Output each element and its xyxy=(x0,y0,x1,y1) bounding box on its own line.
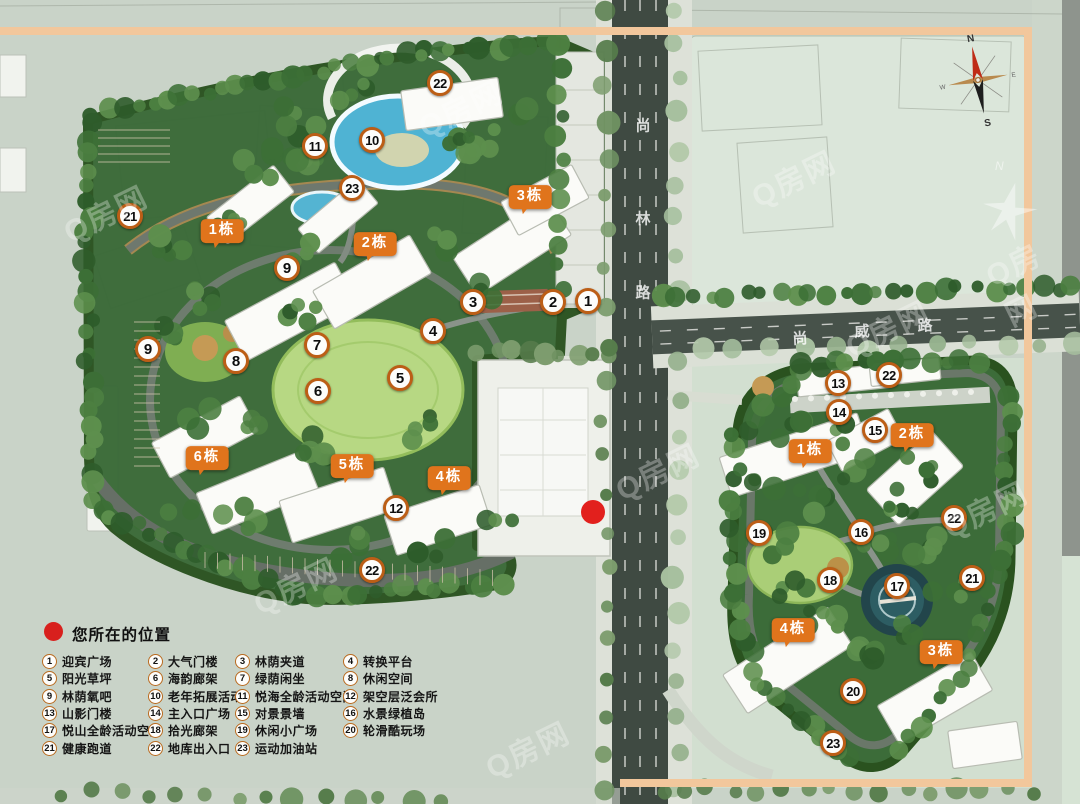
legend: 您所在的位置 1迎宾广场5阳光草坪9林荫氧吧13山影门楼17悦山全龄活动空间21… xyxy=(36,620,636,790)
legend-item-label: 休闲小广场 xyxy=(255,722,318,739)
site-plan-image: N S E W N 您所在的位置 1迎宾广场5阳光草坪9林荫氧吧13山影门楼17… xyxy=(0,0,1080,804)
map-marker-18: 18 xyxy=(817,567,843,593)
building-badge-5栋: 5栋 xyxy=(331,454,374,478)
map-marker-13: 13 xyxy=(825,370,851,396)
map-marker-22: 22 xyxy=(427,70,453,96)
legend-column: 3林荫夹道7绿荫闲坐11悦海全龄活动空间15对景景墙19休闲小广场23运动加油站 xyxy=(235,653,355,757)
building-badge-2栋: 2栋 xyxy=(891,423,934,447)
map-marker-6: 6 xyxy=(305,378,331,404)
legend-item-14: 14主入口广场 xyxy=(148,705,243,722)
legend-item-number: 7 xyxy=(235,671,250,686)
building-badge-6栋: 6栋 xyxy=(186,446,229,470)
legend-item-label: 转换平台 xyxy=(363,653,413,670)
map-marker-22: 22 xyxy=(941,505,967,531)
legend-item-18: 18拾光廊架 xyxy=(148,722,243,739)
right-edge-lower xyxy=(1062,556,1080,804)
legend-item-number: 12 xyxy=(343,689,358,704)
legend-item-19: 19休闲小广场 xyxy=(235,722,355,739)
legend-item-label: 林荫氧吧 xyxy=(62,688,112,705)
legend-item-number: 21 xyxy=(42,741,57,756)
legend-item-number: 17 xyxy=(42,723,57,738)
legend-item-number: 5 xyxy=(42,671,57,686)
legend-item-number: 4 xyxy=(343,654,358,669)
legend-item-number: 23 xyxy=(235,741,250,756)
horizontal-road-label: 尚 xyxy=(792,327,808,349)
legend-item-label: 健康跑道 xyxy=(62,740,112,757)
map-marker-14: 14 xyxy=(826,399,852,425)
legend-item-label: 迎宾广场 xyxy=(62,653,112,670)
legend-item-22: 22地库出入口 xyxy=(148,739,243,756)
legend-item-label: 老年拓展活动 xyxy=(168,688,243,705)
legend-item-number: 3 xyxy=(235,654,250,669)
legend-item-3: 3林荫夹道 xyxy=(235,653,355,670)
legend-item-label: 轮滑酷玩场 xyxy=(363,722,426,739)
legend-item-label: 休闲空间 xyxy=(363,670,413,687)
north-east-plot xyxy=(690,36,1028,306)
legend-item-1: 1迎宾广场 xyxy=(42,653,162,670)
orange-frame-right xyxy=(1024,27,1032,787)
legend-item-label: 地库出入口 xyxy=(168,740,231,757)
legend-item-number: 1 xyxy=(42,654,57,669)
legend-item-4: 4转换平台 xyxy=(343,653,438,670)
legend-item-15: 15对景景墙 xyxy=(235,705,355,722)
legend-item-number: 10 xyxy=(148,689,163,704)
legend-item-20: 20轮滑酷玩场 xyxy=(343,722,438,739)
watermark-north-letter: N xyxy=(995,159,1004,173)
legend-item-label: 对景景墙 xyxy=(255,705,305,722)
vertical-road-label: 尚 xyxy=(635,115,650,136)
building-badge-2栋: 2栋 xyxy=(354,232,397,256)
legend-item-8: 8休闲空间 xyxy=(343,670,438,687)
legend-column: 4转换平台8休闲空间12架空层泛会所16水景绿植岛20轮滑酷玩场 xyxy=(343,653,438,739)
legend-item-label: 水景绿植岛 xyxy=(363,705,426,722)
map-marker-11: 11 xyxy=(302,133,328,159)
horizontal-road-label: 威 xyxy=(854,320,870,342)
map-marker-16: 16 xyxy=(848,519,874,545)
map-marker-9: 9 xyxy=(274,255,300,281)
map-marker-8: 8 xyxy=(223,348,249,374)
legend-item-number: 14 xyxy=(148,706,163,721)
orange-frame-top xyxy=(0,27,1032,35)
legend-item-13: 13山影门楼 xyxy=(42,705,162,722)
map-marker-23: 23 xyxy=(820,730,846,756)
legend-item-label: 悦山全龄活动空间 xyxy=(62,722,162,739)
legend-item-12: 12架空层泛会所 xyxy=(343,688,438,705)
building-badge-1栋: 1栋 xyxy=(789,439,832,463)
building-badge-4栋: 4栋 xyxy=(428,466,471,490)
building-badge-4栋: 4栋 xyxy=(772,618,815,642)
legend-item-9: 9林荫氧吧 xyxy=(42,688,162,705)
legend-item-number: 19 xyxy=(235,723,250,738)
building-badge-3栋: 3栋 xyxy=(509,185,552,209)
legend-item-number: 13 xyxy=(42,706,57,721)
legend-item-label: 海韵廊架 xyxy=(168,670,218,687)
map-marker-7: 7 xyxy=(304,332,330,358)
legend-item-11: 11悦海全龄活动空间 xyxy=(235,688,355,705)
vertical-road-label: 林 xyxy=(635,208,650,229)
orange-frame-bottom xyxy=(620,779,1032,787)
current-location-dot xyxy=(581,500,605,524)
legend-item-17: 17悦山全龄活动空间 xyxy=(42,722,162,739)
legend-item-label: 绿荫闲坐 xyxy=(255,670,305,687)
legend-column: 2大气门楼6海韵廊架10老年拓展活动14主入口广场18拾光廊架22地库出入口 xyxy=(148,653,243,757)
map-marker-21: 21 xyxy=(117,203,143,229)
map-marker-3: 3 xyxy=(460,289,486,315)
legend-item-5: 5阳光草坪 xyxy=(42,670,162,687)
horizontal-road-label: 路 xyxy=(917,314,933,336)
legend-item-2: 2大气门楼 xyxy=(148,653,243,670)
map-marker-20: 20 xyxy=(840,678,866,704)
map-marker-21: 21 xyxy=(959,565,985,591)
legend-item-label: 主入口广场 xyxy=(168,705,231,722)
legend-item-number: 16 xyxy=(343,706,358,721)
legend-item-number: 15 xyxy=(235,706,250,721)
legend-item-21: 21健康跑道 xyxy=(42,739,162,756)
legend-item-label: 悦海全龄活动空间 xyxy=(255,688,355,705)
legend-item-number: 11 xyxy=(235,689,250,704)
legend-item-label: 林荫夹道 xyxy=(255,653,305,670)
legend-item-6: 6海韵廊架 xyxy=(148,670,243,687)
legend-item-label: 运动加油站 xyxy=(255,740,318,757)
map-marker-1: 1 xyxy=(575,288,601,314)
legend-item-label: 拾光廊架 xyxy=(168,722,218,739)
map-marker-9: 9 xyxy=(135,336,161,362)
legend-item-number: 9 xyxy=(42,689,57,704)
legend-item-10: 10老年拓展活动 xyxy=(148,688,243,705)
map-marker-15: 15 xyxy=(862,417,888,443)
legend-item-number: 8 xyxy=(343,671,358,686)
legend-title: 您所在的位置 xyxy=(72,623,171,645)
legend-item-number: 6 xyxy=(148,671,163,686)
map-marker-10: 10 xyxy=(359,127,385,153)
map-marker-19: 19 xyxy=(746,520,772,546)
map-marker-5: 5 xyxy=(387,365,413,391)
legend-item-label: 架空层泛会所 xyxy=(363,688,438,705)
legend-item-23: 23运动加油站 xyxy=(235,739,355,756)
legend-item-label: 山影门楼 xyxy=(62,705,112,722)
legend-item-16: 16水景绿植岛 xyxy=(343,705,438,722)
building-badge-1栋: 1栋 xyxy=(201,219,244,243)
legend-location-dot-icon xyxy=(44,622,63,641)
map-marker-2: 2 xyxy=(540,289,566,315)
legend-column: 1迎宾广场5阳光草坪9林荫氧吧13山影门楼17悦山全龄活动空间21健康跑道 xyxy=(42,653,162,757)
map-marker-22: 22 xyxy=(876,362,902,388)
legend-item-number: 20 xyxy=(343,723,358,738)
legend-item-7: 7绿荫闲坐 xyxy=(235,670,355,687)
legend-item-label: 大气门楼 xyxy=(168,653,218,670)
map-marker-12: 12 xyxy=(383,495,409,521)
legend-item-number: 22 xyxy=(148,741,163,756)
legend-item-number: 18 xyxy=(148,723,163,738)
map-marker-17: 17 xyxy=(884,573,910,599)
vertical-road-label: 路 xyxy=(635,282,650,303)
map-marker-22: 22 xyxy=(359,557,385,583)
map-marker-4: 4 xyxy=(420,318,446,344)
legend-item-number: 2 xyxy=(148,654,163,669)
building-badge-3栋: 3栋 xyxy=(920,640,963,664)
legend-item-label: 阳光草坪 xyxy=(62,670,112,687)
map-marker-23: 23 xyxy=(339,175,365,201)
